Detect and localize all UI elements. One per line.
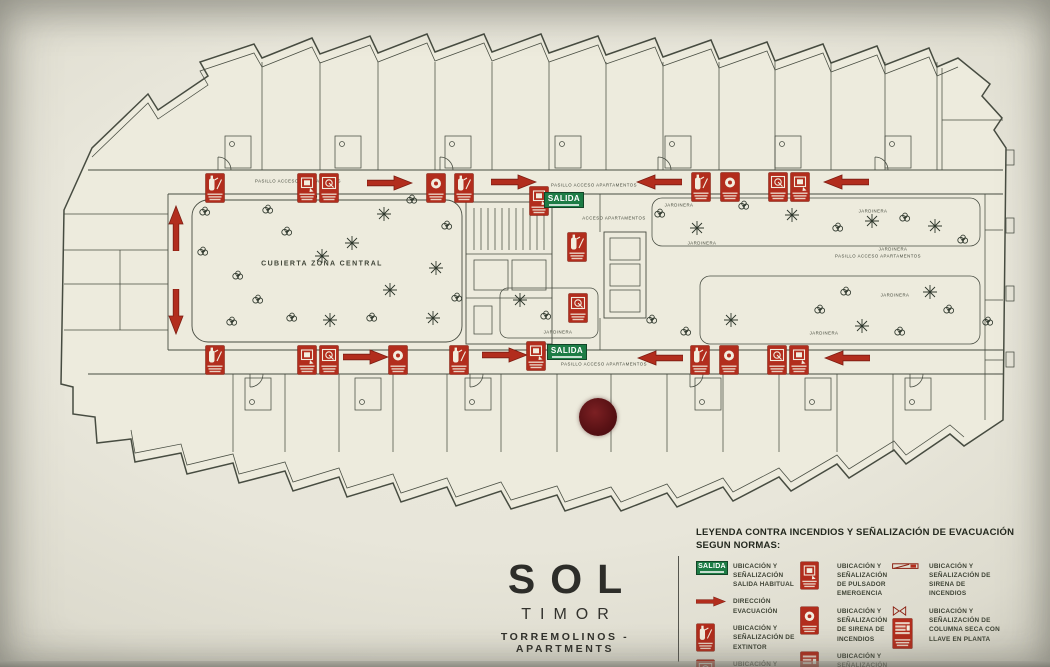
hotel-brand: SOL [452, 556, 678, 603]
legend-item-label: UBICACIÓN Y SEÑALIZACIÓN DE COLUMNA SECA… [929, 606, 1001, 649]
hotel-subtitle: TORREMOLINOS - APARTMENTS [452, 631, 678, 655]
salida-exit-sign: SALIDA [696, 561, 728, 575]
legend-item: UBICACIÓN Y SEÑALIZACIÓN DE COLUMNA SECA… [892, 606, 1032, 649]
title-block: SOL TIMOR TORREMOLINOS - APARTMENTS [452, 556, 678, 655]
sirena-techo-legend-icon [892, 561, 924, 599]
legend-item-label: UBICACIÓN Y SEÑALIZACIÓN DE SIRENA DE IN… [929, 561, 1001, 599]
evacuation-plan-photo: CUBIERTA ZONA CENTRALPASILLO ACCESO APAR… [0, 0, 1050, 667]
legend-item: UBICACIÓN Y SEÑALIZACIÓN DE COLUMNA SECA [800, 651, 892, 667]
legend-title-line2: SEGUN NORMAS: [696, 540, 1034, 553]
sirena-icon [800, 606, 819, 635]
salida-sign-text: SALIDA [698, 563, 726, 570]
evacuation-arrow-icon [696, 596, 726, 607]
salida-sign-legend-icon: SALIDA [696, 561, 728, 590]
sirena-legend-icon [800, 606, 832, 644]
evacuation-arrow-legend-icon [696, 596, 728, 616]
legend-title-line1: LEYENDA CONTRA INCENDIOS Y SEÑALIZACIÓN … [696, 527, 1034, 540]
legend-column-2: UBICACIÓN Y SEÑALIZACIÓN DE PULSADOR EME… [800, 561, 892, 667]
legend-column-1: SALIDAUBICACIÓN Y SEÑALIZACIÓN SALIDA HA… [696, 561, 800, 667]
legend-item-label: UBICACIÓN Y SEÑALIZACIÓN DE PULSADOR EME… [837, 561, 892, 599]
legend-item: UBICACIÓN Y SEÑALIZACIÓN DE SIRENA DE IN… [800, 606, 892, 644]
legend-item-label: UBICACIÓN Y SEÑALIZACIÓN DE COLUMNA SECA [837, 651, 892, 667]
title-legend-divider [678, 556, 679, 662]
you-are-here-dot [579, 398, 617, 436]
legend-column-3: UBICACIÓN Y SEÑALIZACIÓN DE SIRENA DE IN… [892, 561, 1032, 667]
salida-sign-subline [700, 571, 724, 573]
legend-item: UBICACIÓN Y SEÑALIZACIÓN DE SIRENA DE IN… [892, 561, 1032, 599]
columna-seca-llave-legend-icon [892, 606, 924, 649]
columna-seca-llave-icon [892, 618, 913, 649]
legend-item-label: UBICACIÓN Y SEÑALIZACIÓN DE SIRENA DE IN… [837, 606, 892, 644]
columna-seca-legend-icon [800, 651, 832, 667]
bowtie-valve-icon [892, 606, 907, 616]
legend-item: UBICACIÓN Y SEÑALIZACIÓN DE PULSADOR EME… [800, 561, 892, 599]
extintor-icon [696, 623, 715, 652]
hotel-name: TIMOR [452, 606, 678, 624]
extintor-legend-icon [696, 623, 728, 652]
legend-item: UBICACIÓN Y SEÑALIZACIÓN DE BOCA DE INCE… [696, 659, 800, 667]
columna-seca-icon [800, 651, 819, 667]
legend-item-label: DIRECCIÓN EVACUACIÓN [733, 596, 800, 616]
sirena-techo-icon [892, 561, 919, 571]
legend-item-label: UBICACIÓN Y SEÑALIZACIÓN SALIDA HABITUAL [733, 561, 800, 590]
legend-item-label: UBICACIÓN Y SEÑALIZACIÓN DE EXTINTOR [733, 623, 800, 652]
legend-item: UBICACIÓN Y SEÑALIZACIÓN DE EXTINTOR [696, 623, 800, 652]
legend-item-label: UBICACIÓN Y SEÑALIZACIÓN DE BOCA DE INCE… [733, 659, 800, 667]
legend-item: DIRECCIÓN EVACUACIÓN [696, 596, 800, 616]
fire-safety-legend: LEYENDA CONTRA INCENDIOS Y SEÑALIZACIÓN … [696, 527, 1034, 667]
boca-incendio-icon [696, 659, 715, 667]
legend-columns: SALIDAUBICACIÓN Y SEÑALIZACIÓN SALIDA HA… [696, 561, 1034, 667]
pulsador-legend-icon [800, 561, 832, 599]
legend-item: SALIDAUBICACIÓN Y SEÑALIZACIÓN SALIDA HA… [696, 561, 800, 590]
pulsador-icon [800, 561, 819, 590]
boca-incendio-legend-icon [696, 659, 728, 667]
floor-plan-drawing [0, 0, 1050, 530]
